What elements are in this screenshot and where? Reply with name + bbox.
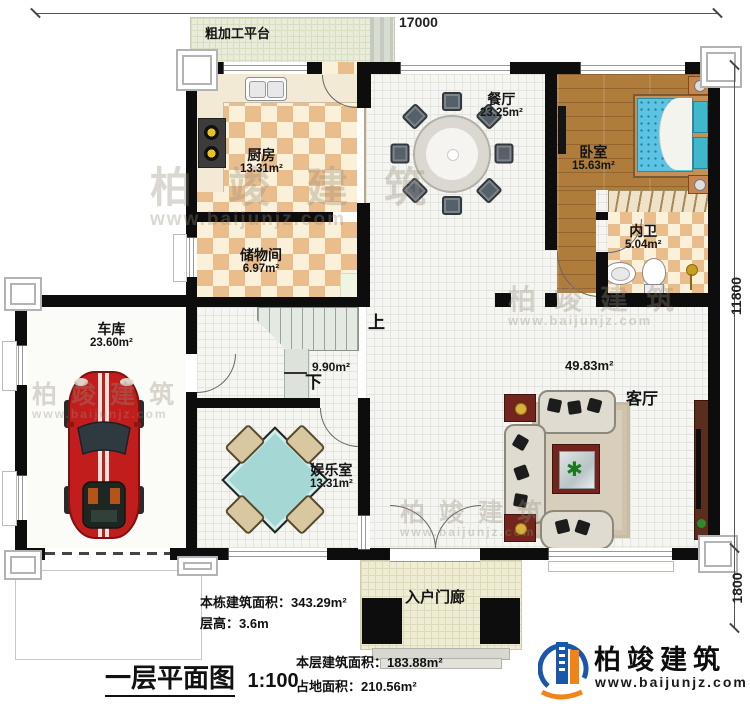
toilet [642,258,666,286]
sink-basin [249,81,266,98]
wall [545,293,557,307]
tv-screen [696,429,701,509]
sofa-pillow [547,398,562,413]
wall [186,392,197,560]
wall [186,212,333,222]
column-marker [176,49,218,91]
wall [307,62,322,74]
kitchen-area: 13.31m² [240,163,283,175]
stove-burner [204,125,219,140]
wall [480,548,548,560]
note-total-area: 本栋建筑面积：343.29m² [200,592,347,611]
wall [358,398,370,515]
scale-label: 1:100 [247,670,298,692]
wall [186,398,320,408]
stairs-area-label: 9.90m² [312,360,350,374]
wall [357,203,370,307]
storage-area: 6.97m² [240,263,282,275]
stairs-up-label: 上 [368,314,385,333]
window-sill [548,561,674,572]
porch-label: 入户门廊 [405,590,465,607]
floor-transition-strip [364,108,366,203]
storage-label-group: 储物间 6.97m² [240,248,282,275]
wall [596,212,608,220]
bathroom-area: 5.04m² [625,239,661,251]
dimension-width: 17000 [396,14,441,30]
dimension-height: 11800 [728,263,744,329]
column-marker [177,556,218,576]
dimension-line-top [35,13,718,14]
stove [198,118,226,168]
toilet-brush [686,264,698,276]
sofa-pillow [555,519,571,535]
dining-chair [495,144,514,164]
bedroom-area: 15.63m² [572,160,615,172]
window [223,62,309,74]
kitchen-label: 厨房 [240,148,283,163]
dining-chair [442,196,462,215]
storage-label: 储物间 [240,248,282,263]
entertainment-area: 13.31m² [310,478,353,490]
window [228,548,329,560]
entertainment-label-group: 娱乐室 13.31m² [310,463,353,490]
bed-pillow [693,137,708,169]
stove-burner [204,146,219,161]
window [548,548,674,560]
dimension-porch: 1800 [729,557,745,619]
wall [708,62,720,560]
dining-table-center [447,149,459,161]
sofa-pillow [587,398,603,414]
platform-label: 粗加工平台 [205,27,270,41]
sofa-top [538,390,616,434]
note-floor-height: 层高：3.6m [200,613,269,632]
stairs-down-label: 下 [305,374,322,393]
wall [596,293,720,307]
bed-blanket [659,98,692,170]
kitchen-sink [245,77,287,101]
garage-label: 车库 [90,322,133,337]
side-table [504,394,536,422]
bathroom-sink [604,262,636,285]
sink-bowl [611,267,630,281]
wall [15,295,197,307]
bathroom-label: 内卫 [625,224,661,239]
sofa-pillow [513,493,528,508]
window-sill [2,471,17,526]
sofa-pillow [512,434,530,452]
side-table [504,514,536,542]
door-opening [322,62,357,74]
dining-area: 23.25m² [480,107,523,119]
lamp-icon [694,179,706,191]
brand-logo: 柏竣建筑 www.baijunjz.com [538,632,748,702]
nightstand [688,175,710,194]
window [358,515,370,550]
page-title: 一层平面图 [105,663,235,697]
column-marker [4,277,42,311]
brand-name: 柏竣建筑 [594,638,726,677]
dining-chair [442,92,462,111]
wall [545,62,557,250]
brand-site: www.baijunjz.com [595,674,748,690]
bed [633,94,712,178]
bedroom-tv [558,106,566,154]
sofa-pillow [567,400,582,415]
car-top-view [63,370,145,540]
wall [186,297,370,307]
dining-label: 餐厅 [480,92,523,107]
dining-table [413,115,491,193]
note-footprint: 占地面积：210.56m² [296,676,417,695]
side-table-decor [515,523,527,535]
plant-icon [697,519,706,528]
note-floor-area: 本层建筑面积：183.88m² [296,652,443,671]
brand-logo-icon [538,634,590,700]
porch-column [480,598,520,644]
garage-area: 23.60m² [90,337,133,349]
title-block: 一层平面图 1:100 [105,658,299,695]
stairs-break-line [284,372,307,374]
wall [357,62,371,108]
dining-chair [391,144,410,164]
column [495,293,511,307]
sofa-bottom [540,510,614,550]
sofa-pillow [574,519,590,535]
living-label: 客厅 [626,391,658,409]
window-sill [2,341,17,391]
wall [186,277,197,354]
coffee-table: ✱ [552,444,600,494]
bathroom-label-group: 内卫 5.04m² [625,224,661,251]
entry-door-opening [390,548,480,562]
window-sill [173,234,187,282]
dining-label-group: 餐厅 23.25m² [480,92,523,119]
living-area: 49.83m² [565,358,613,373]
toilet-brush-handle [690,274,692,290]
kitchen-label-group: 厨房 13.31m² [240,148,283,175]
sink-basin [267,81,284,98]
wall [596,252,608,293]
floor-plan: 粗加工平台 柏竣建筑 www.baijunjz.com 柏竣建筑 www.bai… [0,0,750,706]
sofa-left [504,424,546,524]
window [186,237,197,279]
driveway-outline [15,570,202,660]
column-marker [4,550,42,580]
side-table-decor [515,403,527,415]
bed-pillow [693,101,708,133]
garage-door-dashed [45,552,170,555]
wall [15,385,27,475]
porch-column [362,598,402,644]
sofa-pillow [513,464,530,481]
window [400,62,512,74]
garage-label-group: 车库 23.60m² [90,322,133,349]
window [580,62,687,74]
plant-icon: ✱ [566,457,583,482]
bedroom-label-group: 卧室 15.63m² [572,145,615,172]
bedroom-label: 卧室 [572,145,615,160]
entertainment-label: 娱乐室 [310,463,353,478]
platform-steps [370,17,393,62]
